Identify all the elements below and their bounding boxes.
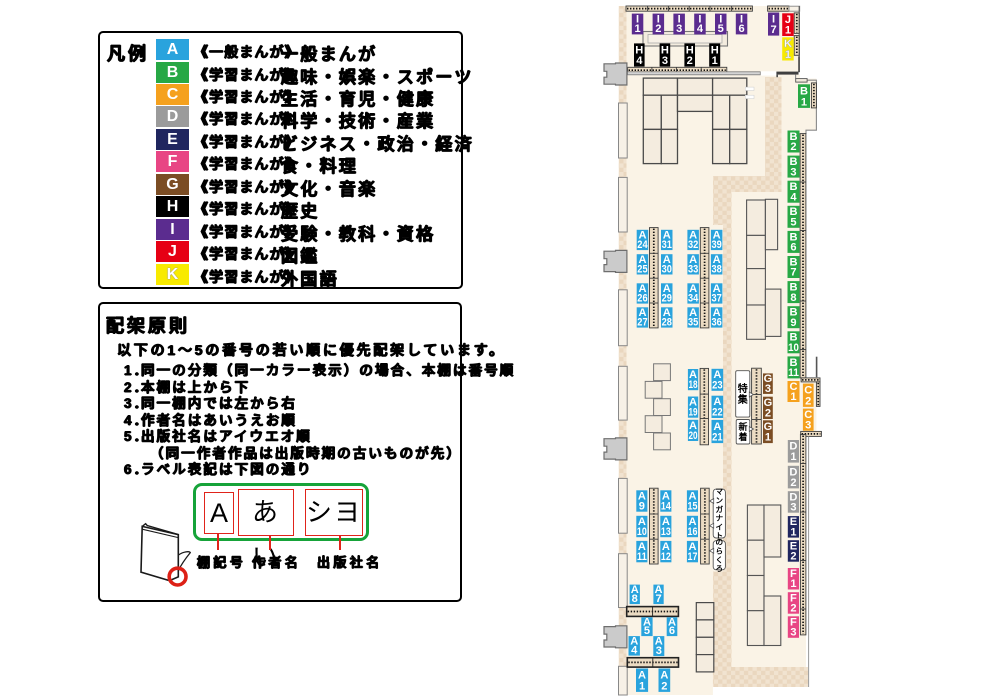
svg-text:ガ: ガ: [716, 504, 724, 514]
svg-text:ろ: ろ: [716, 564, 724, 573]
svg-text:イ: イ: [716, 522, 724, 531]
svg-text:27: 27: [637, 316, 647, 328]
svg-text:25: 25: [637, 263, 647, 275]
svg-text:19: 19: [689, 406, 698, 418]
svg-text:2: 2: [655, 23, 661, 35]
svg-text:1: 1: [765, 432, 771, 444]
svg-text:2: 2: [805, 395, 811, 407]
svg-text:12: 12: [661, 551, 671, 563]
svg-text:14: 14: [661, 500, 672, 512]
svg-text:13: 13: [661, 526, 671, 538]
svg-text:1: 1: [634, 23, 640, 35]
svg-text:8: 8: [790, 292, 796, 304]
svg-text:7: 7: [655, 593, 661, 605]
svg-text:2: 2: [790, 602, 796, 614]
svg-text:15: 15: [688, 500, 698, 512]
svg-text:39: 39: [712, 239, 722, 251]
svg-text:6: 6: [738, 23, 744, 35]
svg-text:10: 10: [637, 526, 647, 538]
svg-text:16: 16: [688, 526, 698, 538]
svg-text:8: 8: [632, 593, 638, 605]
svg-text:9: 9: [639, 500, 645, 512]
svg-text:3: 3: [656, 645, 662, 657]
svg-text:の: の: [716, 538, 724, 547]
svg-text:4: 4: [697, 23, 704, 35]
svg-text:7: 7: [771, 24, 777, 36]
svg-text:24: 24: [637, 239, 648, 251]
svg-text:35: 35: [688, 316, 698, 328]
svg-text:6: 6: [669, 625, 675, 637]
svg-text:32: 32: [688, 239, 698, 251]
svg-text:5: 5: [718, 23, 724, 35]
svg-text:4: 4: [631, 645, 638, 657]
svg-text:特: 特: [738, 382, 748, 395]
svg-text:3: 3: [790, 166, 796, 178]
svg-text:1: 1: [801, 96, 807, 108]
svg-text:20: 20: [689, 430, 698, 442]
svg-text:22: 22: [712, 407, 723, 419]
svg-text:ナ: ナ: [716, 514, 724, 523]
svg-text:30: 30: [662, 263, 672, 275]
svg-text:9: 9: [790, 317, 796, 329]
svg-text:36: 36: [712, 316, 722, 328]
svg-text:マ: マ: [716, 487, 724, 496]
svg-text:1: 1: [790, 391, 796, 403]
svg-text:11: 11: [637, 551, 647, 563]
svg-text:3: 3: [676, 23, 682, 35]
svg-text:21: 21: [712, 432, 723, 444]
svg-text:2: 2: [687, 55, 693, 67]
svg-text:29: 29: [662, 292, 672, 304]
svg-text:4: 4: [790, 191, 797, 203]
svg-text:2: 2: [790, 550, 796, 562]
svg-text:2: 2: [765, 408, 771, 420]
svg-text:3: 3: [790, 501, 796, 513]
svg-text:5: 5: [790, 216, 796, 228]
svg-text:く: く: [716, 555, 724, 564]
svg-text:7: 7: [790, 267, 796, 279]
svg-text:10: 10: [788, 342, 799, 354]
svg-text:1: 1: [785, 49, 791, 61]
svg-text:ら: ら: [716, 547, 724, 556]
svg-text:2: 2: [661, 680, 667, 692]
svg-text:17: 17: [688, 551, 698, 563]
svg-text:28: 28: [662, 316, 672, 328]
svg-text:23: 23: [712, 379, 723, 391]
svg-text:3: 3: [662, 55, 668, 67]
svg-text:1: 1: [790, 451, 796, 463]
svg-text:33: 33: [688, 263, 698, 275]
svg-text:4: 4: [636, 55, 643, 67]
svg-text:31: 31: [662, 239, 672, 251]
svg-text:1: 1: [785, 25, 791, 37]
svg-text:5: 5: [644, 625, 650, 637]
svg-text:2: 2: [790, 477, 796, 489]
svg-text:ン: ン: [716, 496, 724, 505]
svg-text:3: 3: [790, 627, 796, 639]
svg-text:18: 18: [689, 379, 698, 391]
svg-text:3: 3: [805, 419, 811, 431]
svg-text:集: 集: [737, 393, 749, 406]
svg-text:3: 3: [765, 383, 771, 395]
svg-text:34: 34: [688, 292, 699, 304]
svg-text:2: 2: [790, 141, 796, 153]
svg-text:11: 11: [788, 367, 799, 379]
svg-text:6: 6: [790, 242, 796, 254]
svg-text:1: 1: [790, 526, 796, 538]
svg-text:着: 着: [737, 431, 747, 442]
svg-text:1: 1: [790, 578, 796, 590]
svg-text:37: 37: [712, 292, 722, 304]
svg-text:1: 1: [639, 680, 645, 692]
svg-text:新: 新: [738, 421, 747, 432]
svg-text:38: 38: [712, 263, 722, 275]
svg-text:26: 26: [637, 292, 647, 304]
svg-text:1: 1: [712, 55, 718, 67]
